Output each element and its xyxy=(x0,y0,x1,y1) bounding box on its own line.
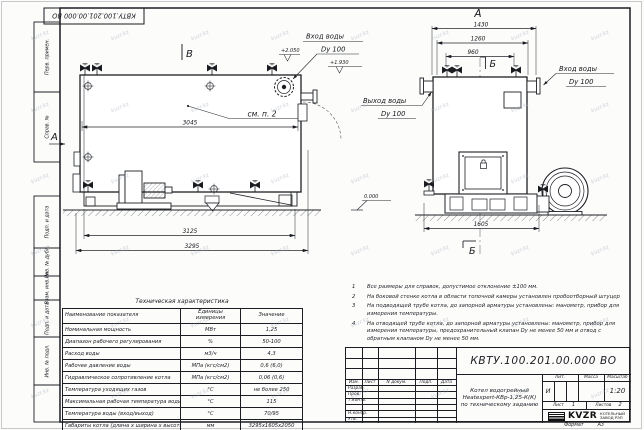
product-name-line3: по техническому заданию xyxy=(461,402,539,409)
dimension-3045-value: 3045 xyxy=(183,121,198,127)
side-inlet-callout: Вход воды Dy 100 xyxy=(293,33,363,80)
section-marker-b: В xyxy=(182,44,193,60)
param-name: Гидравлическое сопротивление котла xyxy=(63,372,181,384)
section-marker-b-bottom-label: Б xyxy=(469,246,476,257)
row-label-tkontr: Т.контр. xyxy=(346,398,380,404)
table-row: Максимальная рабочая температура воды °С… xyxy=(63,396,303,408)
side-inlet-label: Вход воды xyxy=(306,33,345,41)
boiler-shell xyxy=(80,75,301,192)
note-item: 2 На боковой стенке котла в области топо… xyxy=(348,294,626,302)
dimension-1260-value: 1260 xyxy=(471,37,486,43)
valve-icon xyxy=(81,64,90,75)
param-value: 70/95 xyxy=(241,408,303,420)
param-units: МВт xyxy=(181,324,241,336)
side-inlet-dn: Dy 100 xyxy=(321,46,345,54)
format-word: Формат xyxy=(564,423,583,428)
note-item: 4 На отводящей трубе котла, до запорной … xyxy=(348,321,626,344)
tech-col-name: Наименование показателя xyxy=(63,309,181,324)
note-item: 1 Все размеры для справок, допустимое от… xyxy=(348,284,626,292)
sheet-label: Лист xyxy=(553,403,564,408)
param-name: Рабочее давление воды xyxy=(63,360,181,372)
param-units: °С xyxy=(181,384,241,396)
dimension-1430-value: 1430 xyxy=(474,23,489,29)
valve-icon xyxy=(453,66,462,77)
note-number: 3 xyxy=(348,303,367,318)
top-stamp-code: КВТУ.100.201.00.000 ВО xyxy=(52,11,136,19)
margin-label-podp-data-1: Подп. и дата xyxy=(45,206,51,239)
dimension-960-value: 960 xyxy=(467,50,478,56)
lit-header: Лит. xyxy=(542,374,578,381)
param-units: °С xyxy=(181,408,241,420)
drawing-sheet: Перв. примен. Справ. № Подп. и дата Инв.… xyxy=(0,0,644,430)
margin-label-sprav-no: Справ. № xyxy=(45,115,51,138)
margin-label-podp-data-2: Подп. и дата xyxy=(45,302,51,335)
margin-labels: Перв. примен. Справ. № Подп. и дата Инв.… xyxy=(45,39,51,378)
param-units: м3/ч xyxy=(181,348,241,360)
dimension-3295-value: 3295 xyxy=(185,244,200,250)
margin-label-inv-podl: Инв. № подл. xyxy=(45,344,51,377)
dimension-1430: 1430 xyxy=(432,23,536,29)
tech-col-units: Единицы измерения xyxy=(181,309,241,324)
ground-line-left xyxy=(63,210,321,216)
tech-table: Наименование показателя Единицы измерени… xyxy=(62,308,303,430)
table-row: Номинальная мощность МВт 1,25 xyxy=(63,324,303,336)
note-item: 3 На подводящей трубе котла, до запорной… xyxy=(348,303,626,318)
valve-icon xyxy=(512,66,521,77)
note-text: На боковой стенке котла в области топочн… xyxy=(367,294,626,302)
param-value: 0,6 (6,0) xyxy=(241,360,303,372)
table-row: Расход воды м3/ч 4,3 xyxy=(63,348,303,360)
document-number: КВТУ.100.201.00.000 ВО xyxy=(456,348,631,374)
note-number: 1 xyxy=(348,284,367,292)
param-value: не более 250 xyxy=(241,384,303,396)
notes-list: 1 Все размеры для справок, допустимое от… xyxy=(348,284,626,346)
format-value: А3 xyxy=(598,423,604,428)
table-row: Габариты котла (длина х ширина х высота)… xyxy=(63,420,303,430)
motor xyxy=(144,183,165,198)
table-row: Температура воды (вход/выход) °С 70/95 xyxy=(63,408,303,420)
table-row: Диапазон рабочего регулирования % 50-100 xyxy=(63,336,303,348)
boiler-side-view xyxy=(63,64,341,216)
section-marker-a: А xyxy=(49,132,65,144)
col-header-podp: Подп. xyxy=(415,379,437,385)
skid-frame xyxy=(84,192,297,206)
blower-fan xyxy=(537,168,588,215)
elevation-2050-value: +2.050 xyxy=(281,48,300,54)
valve-icon xyxy=(93,64,102,75)
param-units: МПа (кгс/см2) xyxy=(181,372,241,384)
param-units: % xyxy=(181,336,241,348)
param-name: Температура уходящих газов xyxy=(63,384,181,396)
note-text: На отводящей трубе котла, до запорной ар… xyxy=(367,321,626,344)
param-name: Диапазон рабочего регулирования xyxy=(63,336,181,348)
note-number: 4 xyxy=(348,321,367,344)
tech-table-header-row: Наименование показателя Единицы измерени… xyxy=(63,309,303,324)
elevation-1930-value: +1.930 xyxy=(330,60,349,66)
param-units: МПа (кгс/см2) xyxy=(181,360,241,372)
company-logo: KVZR КОТЕЛЬНЫЙ ЗАВОД РЭП xyxy=(542,409,631,423)
elevation-zero-value: 0.000 xyxy=(364,194,378,200)
section-marker-b-top-label: Б xyxy=(490,59,497,70)
section-marker-b-label: В xyxy=(186,49,193,60)
outlet-pipe xyxy=(301,93,314,100)
kvzr-logo-subtext: КОТЕЛЬНЫЙ ЗАВОД РЭП xyxy=(600,412,625,421)
param-name: Номинальная мощность xyxy=(63,324,181,336)
boiler-front-view xyxy=(415,58,607,256)
elevation-mark-zero: 0.000 xyxy=(351,194,391,210)
dimension-1605-value: 1605 xyxy=(474,222,489,228)
param-name: Максимальная рабочая температура воды xyxy=(63,396,181,408)
margin-label-perv-primen: Перв. примен. xyxy=(45,39,51,75)
tech-col-value: Значение xyxy=(241,309,303,324)
dimension-1260: 1260 xyxy=(437,37,528,44)
lit-value: И xyxy=(542,381,554,401)
product-name-line1: Котел водогрейный xyxy=(470,388,529,395)
elevation-mark-2050: +2.050 xyxy=(279,48,300,61)
front-outlet-dn: Dy 100 xyxy=(381,110,405,118)
param-name: Температура воды (вход/выход) xyxy=(63,408,181,420)
title-block: Изм. Лист N докум. Подп. Дата Разраб. Пр… xyxy=(345,347,630,422)
note-number: 2 xyxy=(348,294,367,302)
scale-header: Масштаб xyxy=(604,374,631,381)
valve-icon xyxy=(268,64,277,75)
col-header-ndoc: N докум. xyxy=(378,379,415,385)
kvzr-logo-text: KVZR xyxy=(568,411,597,421)
sheets-value: 2 xyxy=(618,402,621,408)
note-text: На подводящей трубе котла, до запорной а… xyxy=(367,303,626,318)
furnace-door xyxy=(459,152,507,194)
front-inlet-callout: Вход воды Dy 100 xyxy=(544,65,615,87)
param-value: 50-100 xyxy=(241,336,303,348)
kvzr-logo-icon xyxy=(548,412,565,421)
valve-icon xyxy=(443,66,452,77)
valve-icon xyxy=(425,180,434,191)
see-note-text: см. п. 2 xyxy=(248,110,277,119)
row-label-utv: Утв. xyxy=(346,417,380,423)
note-text: Все размеры для справок, допустимое откл… xyxy=(367,284,626,292)
sheets-cell: Листов 2 xyxy=(586,401,631,409)
product-name-line2: Heatexpert-КВр-1,25-К(К) xyxy=(463,395,537,402)
logo-sub-line2: ЗАВОД РЭП xyxy=(600,416,625,420)
section-marker-b-bottom: Б xyxy=(463,241,476,257)
dimension-3125-value: 3125 xyxy=(183,229,198,235)
front-inlet-dn: Dy 100 xyxy=(569,78,593,86)
front-outlet-callout: Выход воды Dy 100 xyxy=(361,92,432,119)
param-value: 4,3 xyxy=(241,348,303,360)
table-row: Рабочее давление воды МПа (кгс/см2) 0,6 … xyxy=(63,360,303,372)
sheets-label: Листов xyxy=(595,403,611,408)
section-marker-b-top: Б xyxy=(480,57,497,70)
ground-line-right xyxy=(415,215,607,221)
format-label: Формат А3 xyxy=(538,422,630,429)
dimension-960: 960 xyxy=(446,50,514,57)
param-name: Габариты котла (длина х ширина х высота) xyxy=(63,420,181,430)
param-value: 0,06 (0,6) xyxy=(241,372,303,384)
valve-icon xyxy=(208,64,217,75)
outlet-nozzle xyxy=(420,78,433,94)
section-marker-a-label: А xyxy=(50,132,58,143)
front-inlet-label: Вход воды xyxy=(559,65,598,73)
tech-table-title: Техническая характеристика xyxy=(62,298,302,305)
elevation-mark-1930: +1.930 xyxy=(328,60,362,73)
front-outlet-label: Выход воды xyxy=(363,97,407,105)
table-row: Гидравлическое сопротивление котла МПа (… xyxy=(63,372,303,384)
product-name: Котел водогрейный Heatexpert-КВр-1,25-К(… xyxy=(457,374,542,423)
view-marker-a-label: А xyxy=(473,8,481,20)
sheet-cell: Лист 1 xyxy=(542,401,586,409)
param-units: мм xyxy=(181,420,241,430)
param-value: 1,25 xyxy=(241,324,303,336)
param-value: 3295х1605х2050 xyxy=(241,420,303,430)
inlet-nozzle xyxy=(527,78,540,94)
param-units: °С xyxy=(181,396,241,408)
param-value: 115 xyxy=(241,396,303,408)
sheet-value: 1 xyxy=(572,402,575,408)
table-row: Температура уходящих газов °С не более 2… xyxy=(63,384,303,396)
param-name: Расход воды xyxy=(63,348,181,360)
mass-header: Масса xyxy=(578,374,604,381)
scale-value: 1:20 xyxy=(604,381,631,401)
margin-label-vzam-inv: Взам. инв. № xyxy=(45,272,51,305)
col-header-data: Дата xyxy=(437,379,456,385)
